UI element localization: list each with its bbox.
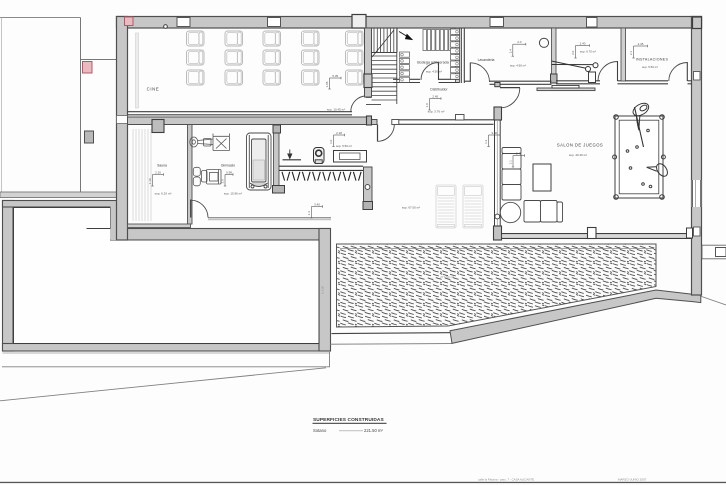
svg-text:sup. 3.76 m²: sup. 3.76 m² <box>428 110 445 114</box>
svg-text:Gimnasio: Gimnasio <box>221 164 235 168</box>
svg-text:5.35: 5.35 <box>332 74 338 78</box>
svg-text:2.40: 2.40 <box>580 41 586 45</box>
svg-text:2.4: 2.4 <box>508 49 512 54</box>
svg-text:sup. 4.50 m²: sup. 4.50 m² <box>426 70 442 74</box>
svg-text:1.0: 1.0 <box>425 103 429 108</box>
svg-text:Lavanderia: Lavanderia <box>478 58 495 62</box>
svg-text:sup. 67.00 m²: sup. 67.00 m² <box>402 206 420 210</box>
svg-text:1.0: 1.0 <box>329 139 333 144</box>
svg-text:1.05: 1.05 <box>325 81 329 87</box>
svg-text:sup. 4.90 m²: sup. 4.90 m² <box>510 64 526 68</box>
svg-text:2.18: 2.18 <box>336 131 342 135</box>
svg-text:1.1: 1.1 <box>509 160 513 165</box>
svg-text:277.50 m²: 277.50 m² <box>440 275 454 279</box>
svg-text:1.10: 1.10 <box>148 178 152 184</box>
svg-text:SALON DE JUEGOS: SALON DE JUEGOS <box>557 143 603 148</box>
svg-text:SUPERFICIES CONSTRUIDAS: SUPERFICIES CONSTRUIDAS <box>313 417 384 423</box>
svg-text:0.98: 0.98 <box>226 170 232 174</box>
svg-text:CINE: CINE <box>147 87 160 92</box>
svg-text:calle la Paloma - parc. 7 - CA: calle la Paloma - parc. 7 - CASA ALICANT… <box>478 478 534 482</box>
svg-text:sup. 5.50 m²: sup. 5.50 m² <box>336 144 352 148</box>
svg-text:1.4: 1.4 <box>307 211 311 216</box>
svg-text:sup. 15.96 m²: sup. 15.96 m² <box>224 192 242 196</box>
svg-text:3.40: 3.40 <box>491 131 497 135</box>
svg-text:sup. 40.40 m²: sup. 40.40 m² <box>569 153 587 157</box>
svg-text:2.40: 2.40 <box>516 151 522 155</box>
svg-text:INSTALACIONES: INSTALACIONES <box>636 58 669 62</box>
svg-text:221.50 m²: 221.50 m² <box>364 428 383 433</box>
svg-text:2.0: 2.0 <box>517 40 522 44</box>
svg-text:Distribuidor: Distribuidor <box>430 88 448 92</box>
svg-text:sup. 6.20 m²: sup. 6.20 m² <box>155 192 172 196</box>
svg-text:1.2: 1.2 <box>484 139 488 144</box>
svg-text:h: 0,20: h: 0,20 <box>321 285 325 293</box>
svg-text:sup. 10.45 m²: sup. 10.45 m² <box>327 107 345 111</box>
svg-text:MARZO-JUNIO 2007: MARZO-JUNIO 2007 <box>618 478 647 482</box>
svg-text:Sauna: Sauna <box>157 164 167 168</box>
svg-text:2.1: 2.1 <box>629 51 633 56</box>
svg-text:2.45: 2.45 <box>432 94 438 98</box>
svg-text:sup. 6.70 m²: sup. 6.70 m² <box>580 50 596 54</box>
svg-text:2.35: 2.35 <box>638 42 644 46</box>
svg-text:Sotano: Sotano <box>313 428 327 433</box>
svg-text:2.0: 2.0 <box>571 50 575 55</box>
svg-text:sup. 5.50 m²: sup. 5.50 m² <box>642 65 658 69</box>
svg-text:Bodega refrigerada: Bodega refrigerada <box>417 61 450 65</box>
svg-text:2.20: 2.20 <box>155 170 161 174</box>
svg-text:3.40: 3.40 <box>314 202 320 206</box>
